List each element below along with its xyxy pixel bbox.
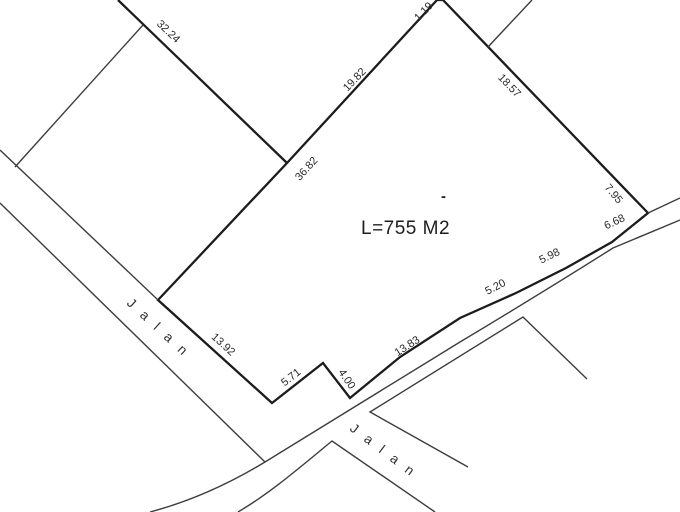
dim-label-nw-upper: 32.24 [154, 18, 182, 46]
dim-label-sw: 13.92 [209, 331, 237, 358]
dim-label-notch-right: 4.00 [336, 367, 358, 391]
dim-label-se-3: 5.20 [483, 277, 508, 298]
neighbor-boundary-west [15, 25, 143, 167]
dim-label-se-2: 5.98 [537, 246, 562, 266]
road-edge-upper [0, 150, 158, 300]
area-label: L=755 M2 [361, 218, 450, 239]
dim-label-ne: 18.57 [495, 72, 523, 100]
neighbor-parcel-wedge [370, 317, 587, 467]
road-label-southeast: Jalan [347, 420, 426, 485]
road-label-northwest: Jalan [124, 295, 198, 365]
dim-label-se-1: 6.68 [602, 212, 626, 232]
road-edge-lower [0, 203, 265, 462]
dim-label-notch-left: 5.71 [279, 366, 303, 389]
dim-label-se-4: 13.83 [393, 334, 423, 359]
survey-plan-canvas: 32.24 1.19 19.82 36.82 18.57 7.95 6.68 5… [0, 0, 680, 512]
neighbor-boundary-north [488, 0, 532, 47]
survey-plan: 32.24 1.19 19.82 36.82 18.57 7.95 6.68 5… [0, 0, 680, 512]
road-edge-right [648, 198, 680, 213]
dim-label-top-bevel: 1.19 [412, 0, 436, 24]
road-edge-south [238, 441, 435, 512]
tick-mark: - [441, 188, 446, 205]
boundary-line-northwest [118, 0, 287, 163]
dim-label-west: 36.82 [293, 155, 320, 183]
